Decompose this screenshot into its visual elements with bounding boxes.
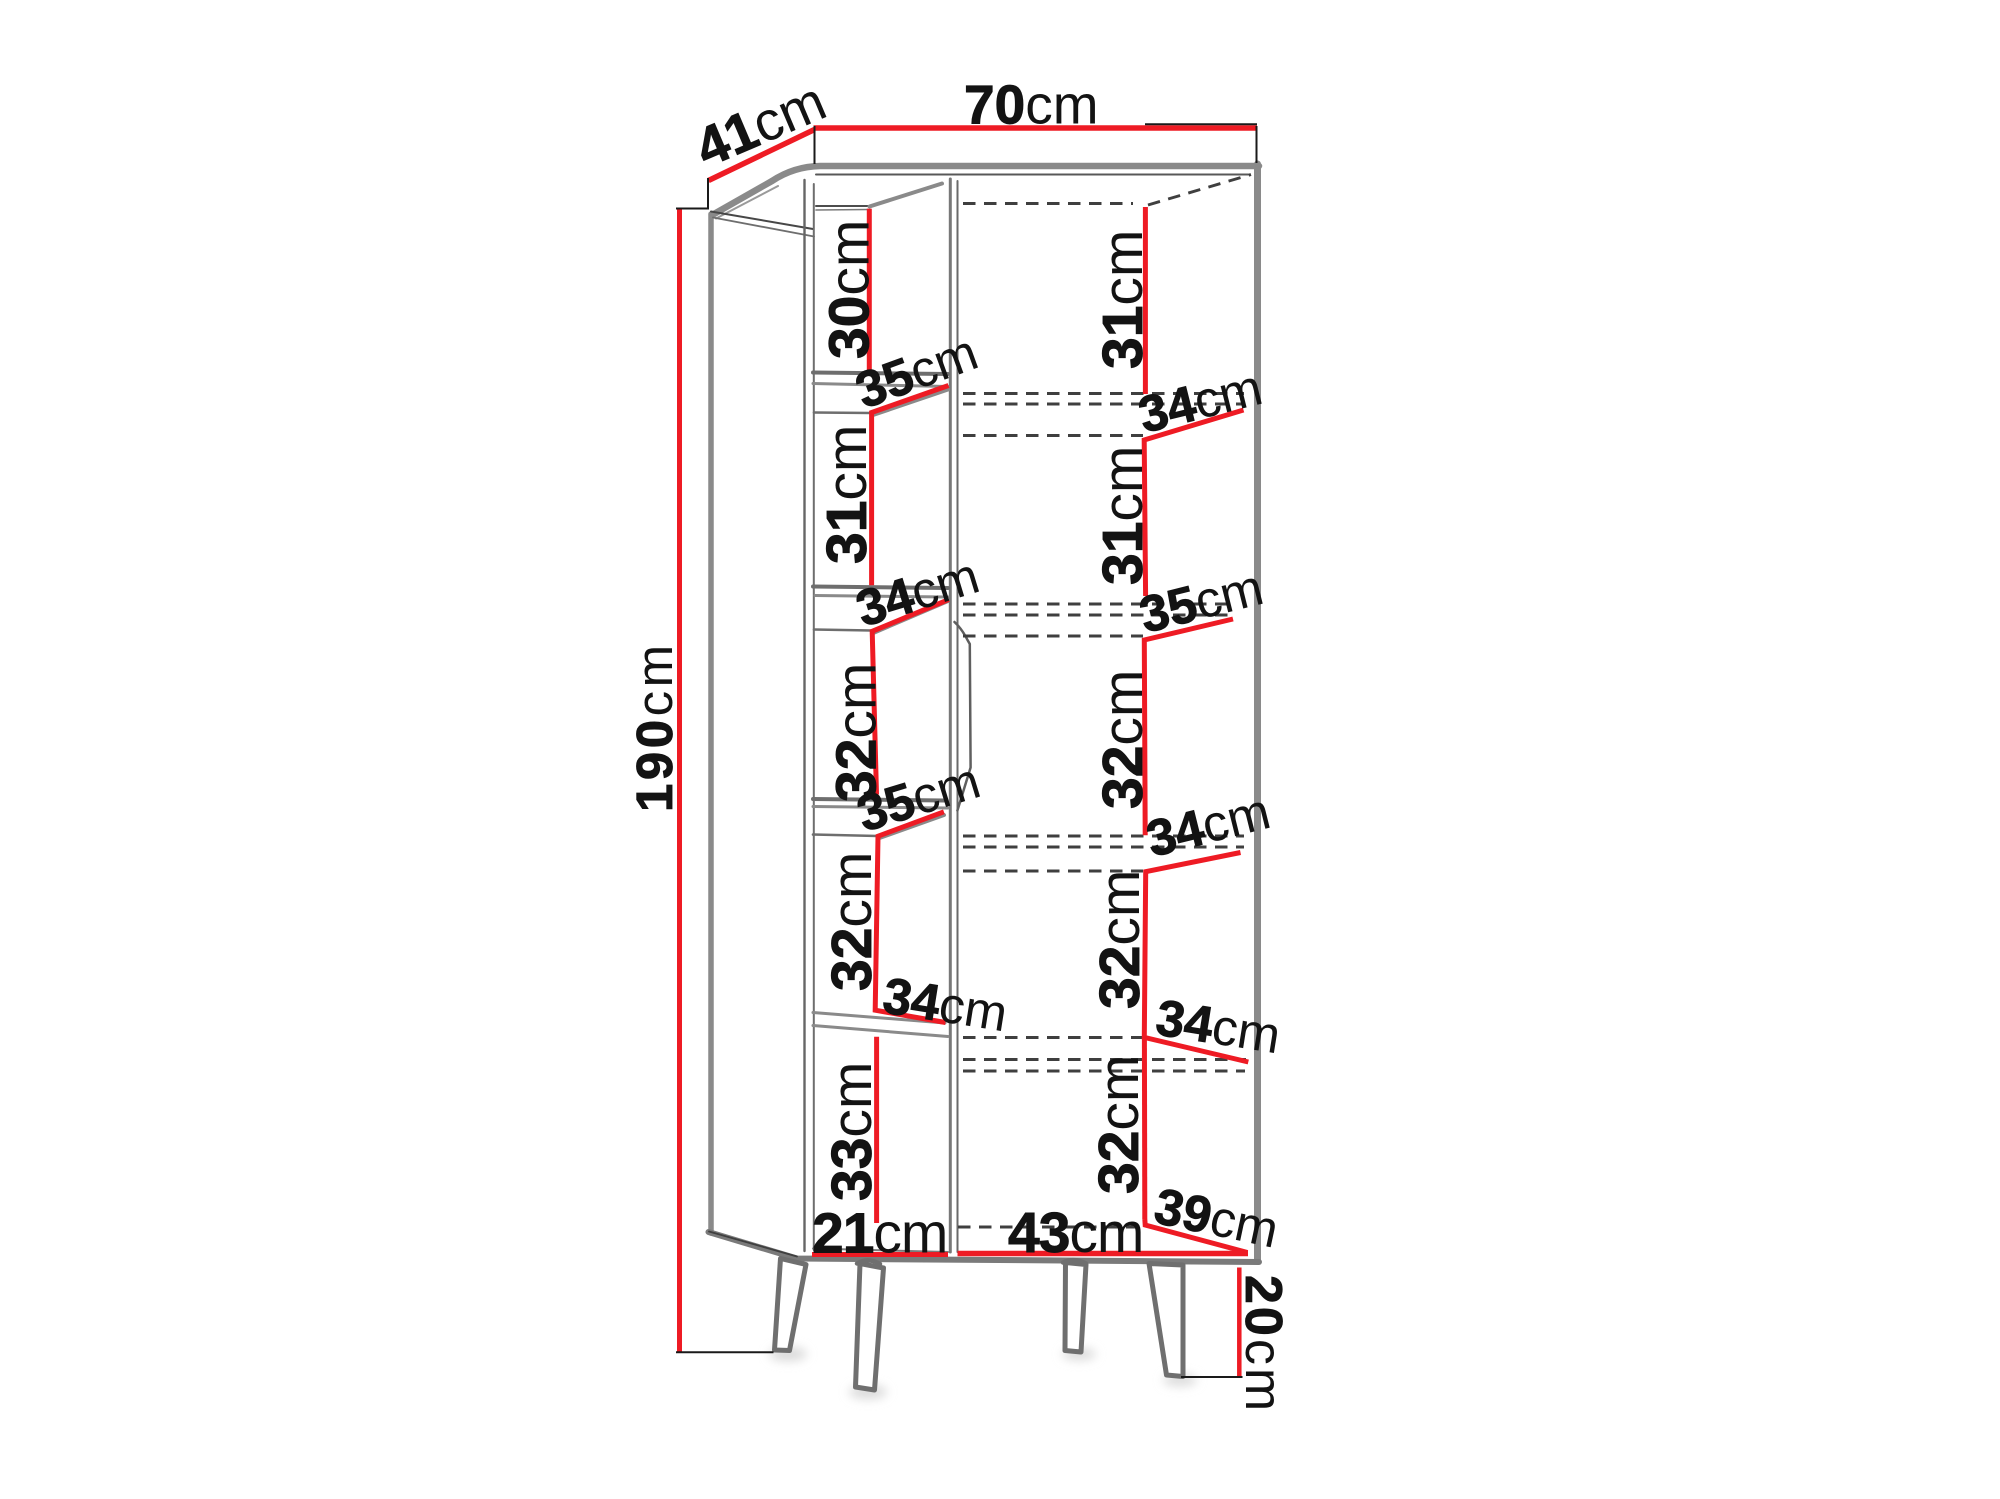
svg-text:34cm: 34cm xyxy=(1133,358,1268,443)
svg-text:31cm: 31cm xyxy=(1091,230,1155,369)
svg-text:20cm: 20cm xyxy=(1234,1275,1292,1414)
svg-text:43cm: 43cm xyxy=(1008,1201,1143,1265)
svg-text:34cm: 34cm xyxy=(879,967,1011,1043)
svg-text:33cm: 33cm xyxy=(820,1062,884,1201)
svg-text:190cm: 190cm xyxy=(626,641,683,812)
svg-text:32cm: 32cm xyxy=(820,852,884,991)
svg-text:31cm: 31cm xyxy=(1091,446,1155,585)
svg-text:32cm: 32cm xyxy=(1088,870,1152,1009)
svg-text:39cm: 39cm xyxy=(1150,1177,1284,1259)
svg-text:32cm: 32cm xyxy=(1091,670,1155,809)
svg-text:41cm: 41cm xyxy=(686,69,834,179)
svg-text:21cm: 21cm xyxy=(812,1202,947,1266)
svg-text:34cm: 34cm xyxy=(1152,989,1284,1065)
svg-text:31cm: 31cm xyxy=(815,425,879,564)
svg-text:32cm: 32cm xyxy=(1087,1055,1151,1194)
svg-text:30cm: 30cm xyxy=(817,220,881,359)
svg-text:70cm: 70cm xyxy=(964,74,1099,136)
